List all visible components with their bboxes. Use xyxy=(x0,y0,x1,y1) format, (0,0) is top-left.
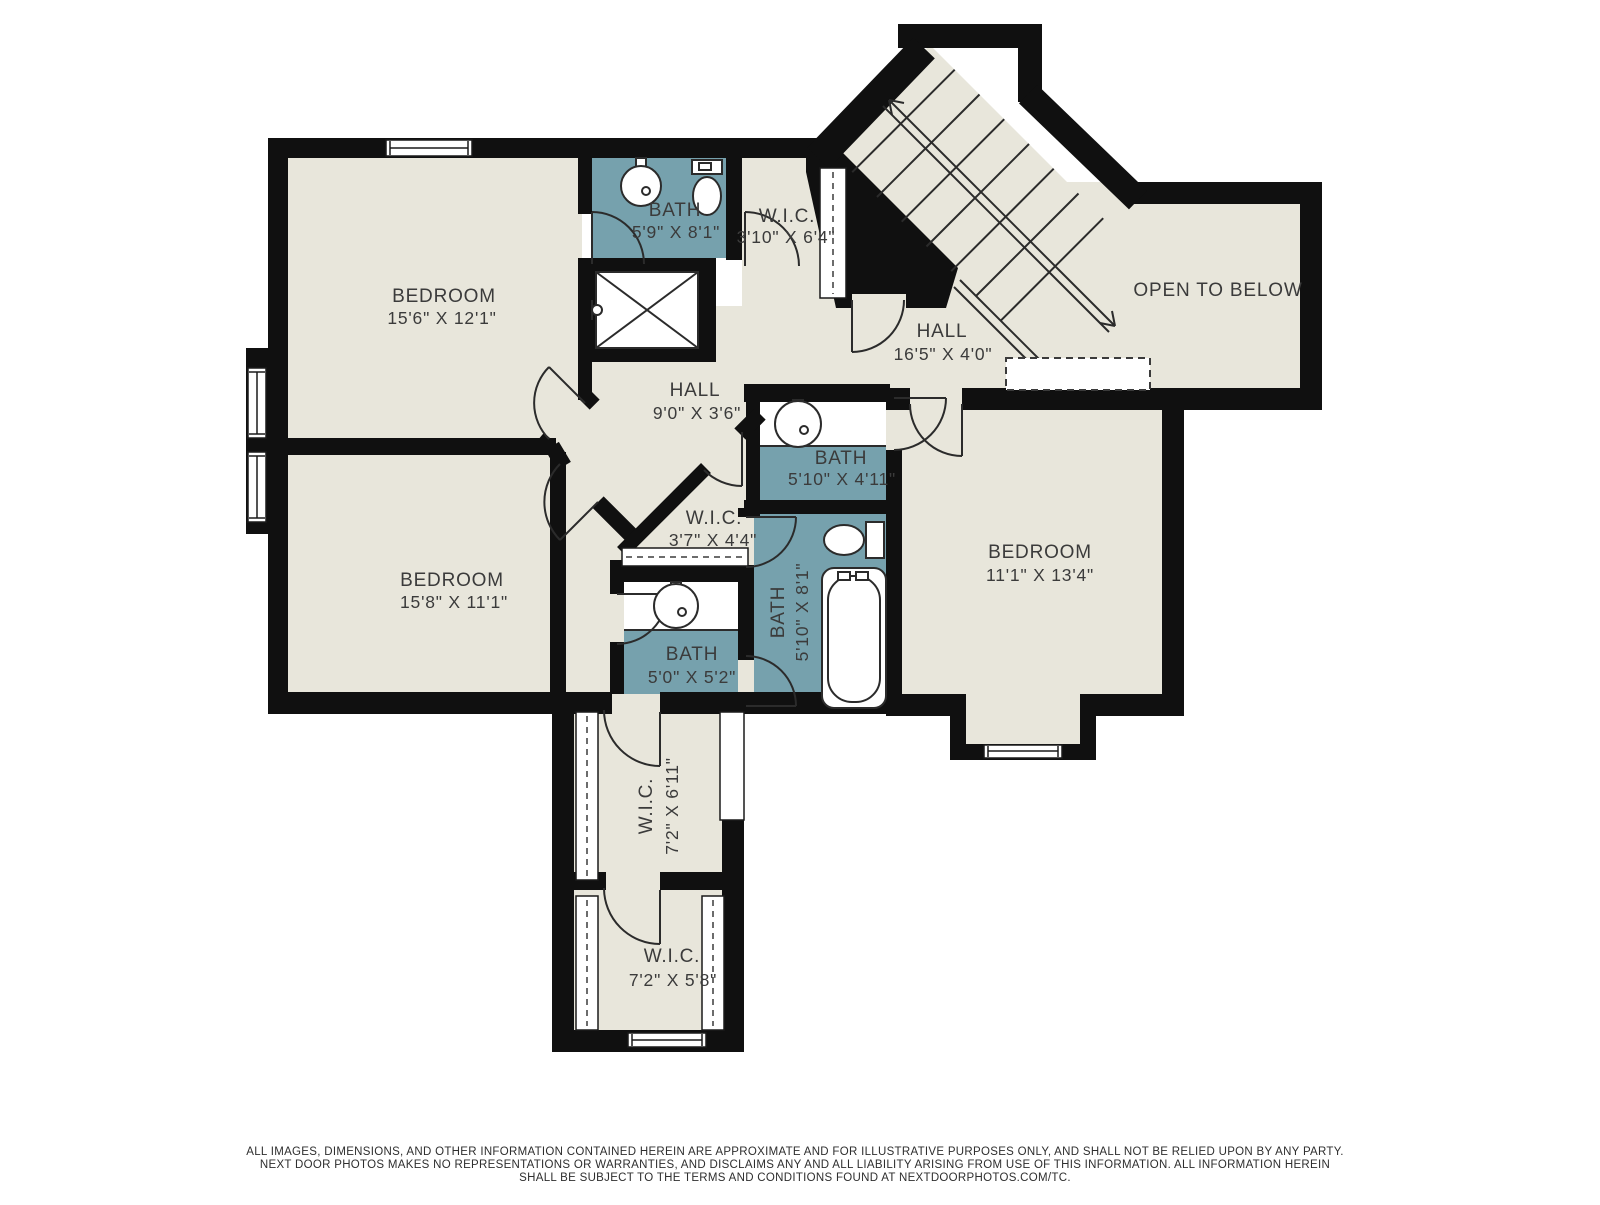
bath-small-name-label: BATH xyxy=(666,644,718,665)
landing-floor xyxy=(740,306,840,388)
bedroom-r-bay-floor xyxy=(952,698,1094,748)
sink-icon xyxy=(775,400,821,447)
floor-plan-canvas: BEDROOM 15'6" X 12'1" BEDROOM 15'8" X 11… xyxy=(0,0,1600,1200)
bedroom-r-dims-label: 11'1" X 13'4" xyxy=(986,565,1094,585)
hall-center-dims-label: 9'0" X 3'6" xyxy=(653,403,741,423)
bath-top-dims-label: 5'9" X 8'1" xyxy=(632,222,720,242)
open-to-below-label: OPEN TO BELOW xyxy=(1133,280,1302,301)
bath-mid-dims-label: 5'10" X 4'11" xyxy=(788,469,896,489)
wic-mid-name-label: W.I.C. xyxy=(636,778,657,835)
floor-plan-page: BEDROOM 15'6" X 12'1" BEDROOM 15'8" X 11… xyxy=(0,0,1600,1200)
wic-bottom-dims-label: 7'2" X 5'8" xyxy=(629,970,717,990)
bath-mid-name-label: BATH xyxy=(815,448,867,469)
bedroom-r-name-label: BEDROOM xyxy=(988,542,1092,563)
disclaimer-line-3: SHALL BE SUBJECT TO THE TERMS AND CONDIT… xyxy=(519,1172,1071,1184)
bath-small-dims-label: 5'0" X 5'2" xyxy=(648,667,736,687)
closet-shelf xyxy=(720,712,744,820)
shower-icon xyxy=(592,272,698,348)
wic-mid-dims-label: 7'2" X 6'11" xyxy=(662,757,682,854)
bedroom-bl-dims-label: 15'8" X 11'1" xyxy=(400,592,508,612)
bedroom-bl-name-label: BEDROOM xyxy=(400,570,504,591)
bath-long-dims-label: 5'10" X 8'1" xyxy=(792,563,812,662)
disclaimer-line-1: ALL IMAGES, DIMENSIONS, AND OTHER INFORM… xyxy=(246,1146,1343,1158)
window xyxy=(386,140,472,156)
hall-upper-dims-label: 16'5" X 4'0" xyxy=(894,344,993,364)
wic-top-dims-label: 3'10" X 6'4" xyxy=(737,227,836,247)
hall-upper-name-label: HALL xyxy=(917,321,968,342)
bedroom-tl-name-label: BEDROOM xyxy=(392,286,496,307)
stairwell-railing xyxy=(1006,358,1150,390)
window xyxy=(248,452,266,522)
window xyxy=(628,1033,706,1047)
wic-center-dims-label: 3'7" X 4'4" xyxy=(669,530,757,550)
disclaimer: ALL IMAGES, DIMENSIONS, AND OTHER INFORM… xyxy=(246,1146,1343,1184)
wic-top-name-label: W.I.C. xyxy=(759,206,816,227)
bath-long-name-label: BATH xyxy=(768,586,789,638)
bath-top-name-label: BATH xyxy=(649,200,701,221)
window xyxy=(248,368,266,438)
disclaimer-line-2: NEXT DOOR PHOTOS MAKES NO REPRESENTATION… xyxy=(260,1159,1330,1171)
wic-center-name-label: W.I.C. xyxy=(686,508,743,529)
toilet-icon xyxy=(824,522,884,558)
bathtub-icon xyxy=(822,568,886,708)
window xyxy=(984,745,1062,758)
hall-center-name-label: HALL xyxy=(670,380,721,401)
wic-bottom-name-label: W.I.C. xyxy=(644,946,701,967)
bedroom-tl-dims-label: 15'6" X 12'1" xyxy=(387,308,496,328)
hall-upper-door-gap xyxy=(852,294,906,308)
